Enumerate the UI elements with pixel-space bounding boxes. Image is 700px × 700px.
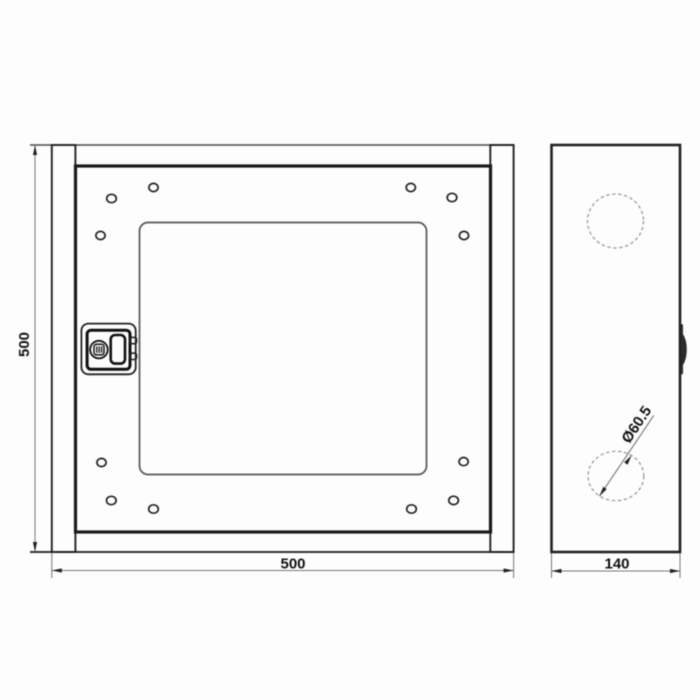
svg-text:500: 500: [16, 332, 33, 357]
svg-text:500: 500: [280, 556, 305, 573]
svg-text:140: 140: [604, 556, 629, 573]
